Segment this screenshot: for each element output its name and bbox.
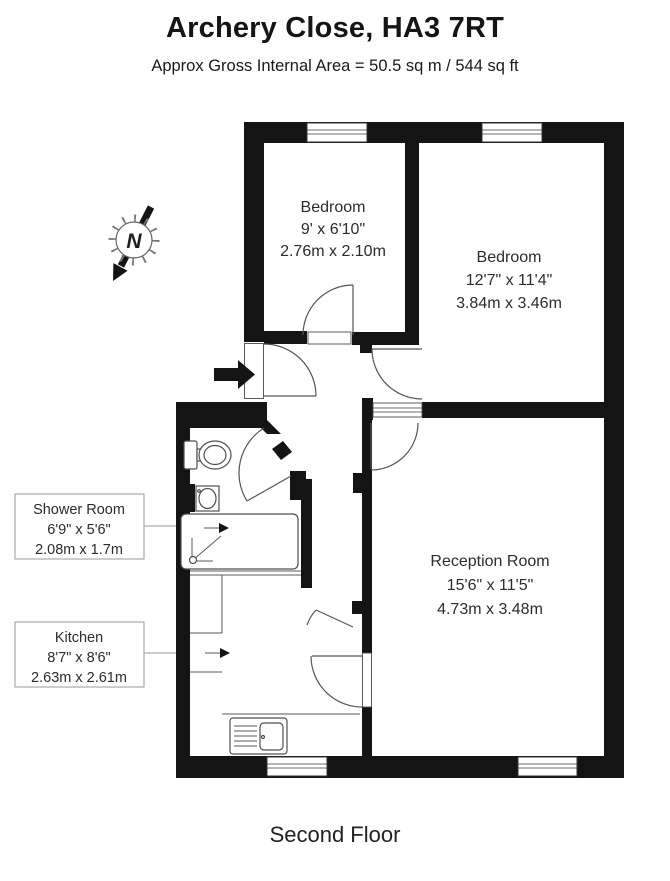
wall-b-left-stub (362, 398, 373, 420)
wall-bedroom-divider (405, 143, 419, 345)
door-kitchen-reception (311, 656, 362, 707)
wall-b (422, 402, 624, 418)
reception-metric: 4.73m x 3.48m (437, 601, 543, 618)
shower-name: Shower Room (33, 502, 125, 518)
shower-room-label: Shower Room 6'9" x 5'6" 2.08m x 1.7m (15, 494, 176, 559)
kitchen-arrow-icon (220, 648, 230, 658)
toilet (184, 441, 231, 469)
kitchen-units (190, 571, 360, 714)
wall-reception-west-lower (362, 707, 372, 756)
reception-imperial: 15'6" x 11'5" (447, 577, 534, 594)
window-reception (518, 757, 577, 776)
floorplan-page: Archery Close, HA3 7RT Approx Gross Inte… (0, 0, 670, 881)
reception-label: Reception Room 15'6" x 11'5" 4.73m x 3.4… (430, 553, 549, 618)
wall-shower-diagonal-stub (272, 441, 292, 460)
wall-bed1-bottom-right (352, 332, 418, 345)
kitchen-label: Kitchen 8'7" x 8'6" 2.63m x 2.61m (15, 622, 176, 687)
compass-north-icon: N (112, 207, 156, 281)
shower-tray (181, 514, 298, 569)
wall-left-upper (244, 143, 264, 342)
bedroom1-metric: 2.76m x 2.10m (280, 243, 386, 260)
wall-right (604, 122, 624, 778)
wall-kitchen-door-stub (352, 601, 368, 614)
wall-corridor (301, 479, 312, 588)
wall-entry-sill (176, 402, 267, 428)
bedroom2-name: Bedroom (477, 249, 542, 266)
bedroom1-label: Bedroom 9' x 6'10" 2.76m x 2.10m (280, 199, 386, 260)
kitchen-metric: 2.63m x 2.61m (31, 670, 127, 686)
wall-reception-west-stub (353, 473, 362, 493)
bedroom1-imperial: 9' x 6'10" (301, 221, 365, 238)
doors (239, 285, 422, 707)
door-kitchen (307, 610, 353, 627)
sill-wall-b-doorway (373, 403, 422, 417)
kitchen-name: Kitchen (55, 630, 103, 646)
basin (196, 486, 219, 511)
kitchen-sink (230, 718, 287, 754)
bedroom2-metric: 3.84m x 3.46m (456, 295, 562, 312)
bedroom2-imperial: 12'7" x 11'4" (466, 272, 553, 289)
bedroom1-name: Bedroom (301, 199, 366, 216)
kitchen-imperial: 8'7" x 8'6" (47, 650, 110, 666)
door-shower-room (239, 428, 291, 501)
bedroom2-label: Bedroom 12'7" x 11'4" 3.84m x 3.46m (456, 249, 562, 312)
wall-top (244, 122, 624, 143)
reception-name: Reception Room (430, 553, 549, 570)
door-bedroom1 (303, 285, 353, 335)
wall-shower-basin-stub (177, 484, 195, 512)
door-reception-hall (371, 423, 418, 470)
window-kitchen (267, 757, 327, 776)
door-entrance (264, 344, 316, 396)
walls (176, 122, 624, 778)
compass-letter: N (126, 230, 142, 253)
sill-reception-doorway (363, 653, 372, 707)
floorplan-drawing: N Bedroom 9' x 6'10" 2.76m x 2.10m Bedro… (0, 0, 670, 881)
sill-bedroom1 (308, 332, 351, 344)
window-bedroom2 (482, 123, 542, 142)
shower-metric: 2.08m x 1.7m (35, 542, 123, 558)
door-bedroom2 (372, 349, 422, 399)
window-bedroom1 (307, 123, 367, 142)
shower-imperial: 6'9" x 5'6" (47, 522, 110, 538)
floor-label: Second Floor (0, 822, 670, 848)
wall-bed1-bottom-left (264, 331, 307, 344)
wall-hall-stub (360, 344, 372, 353)
